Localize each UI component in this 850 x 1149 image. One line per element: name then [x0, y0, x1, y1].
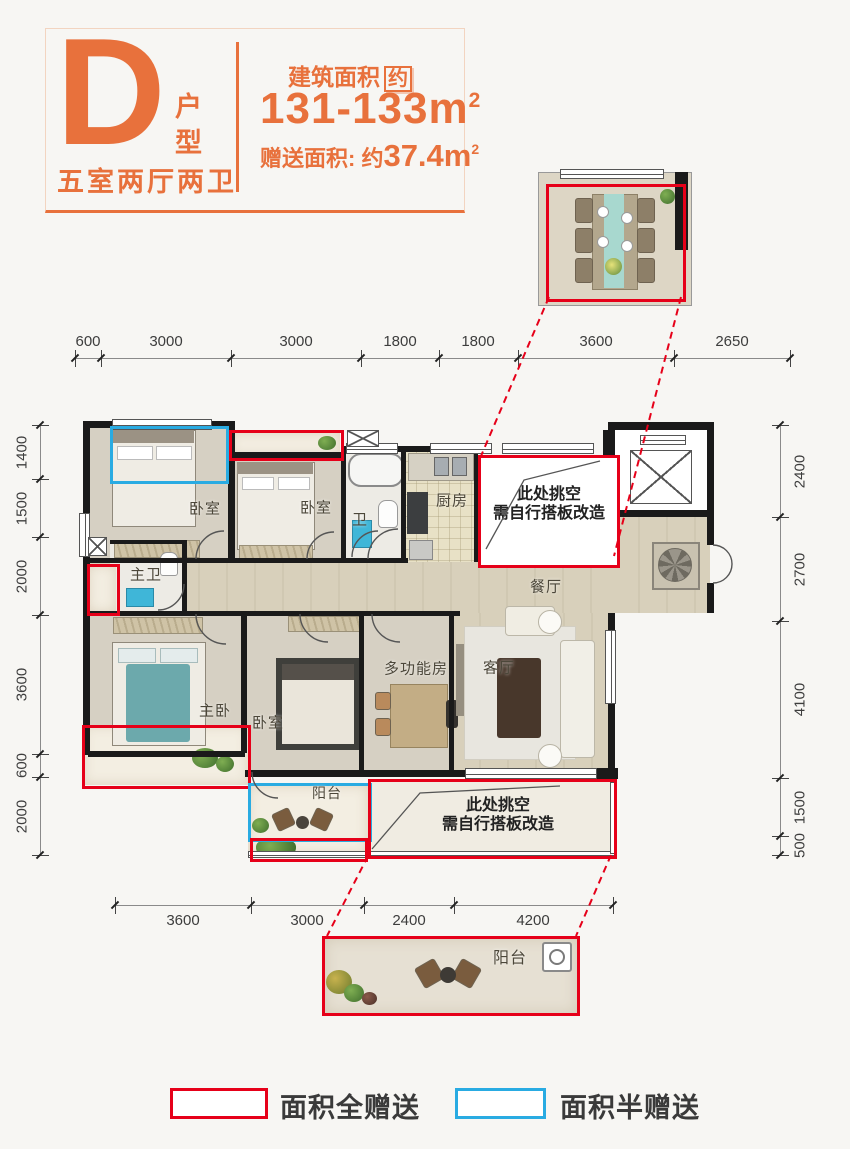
pillow — [118, 648, 156, 663]
plate — [621, 240, 633, 252]
dim-label: 4200 — [501, 912, 565, 929]
dim-label: 1500 — [14, 477, 31, 541]
door-arc — [713, 564, 732, 583]
wardrobe — [288, 616, 360, 632]
wall-segment — [182, 540, 187, 612]
gift-area-row: 赠送面积: 约37.4m2 — [260, 138, 479, 174]
dim-line-left — [40, 425, 41, 855]
bed-headboard — [237, 462, 313, 474]
room-label-kitchen: 厨房 — [436, 490, 468, 511]
medallion-fan — [658, 548, 692, 582]
door-arc — [713, 545, 732, 564]
dim-label: 2400 — [377, 912, 441, 929]
wall-segment — [707, 583, 714, 613]
floorplan-page: D 户型 五室两厅两卫 建筑面积约 131-133m2 赠送面积: 约37.4m… — [0, 0, 850, 1149]
pillow — [160, 648, 198, 663]
bathtub — [348, 453, 404, 487]
room-label-balcony: 阳台 — [312, 783, 342, 803]
dim-label: 3600 — [564, 333, 628, 350]
full-gift-box-side — [87, 564, 120, 616]
plate — [597, 206, 609, 218]
balcony-table — [440, 967, 456, 983]
window — [560, 169, 664, 179]
full-gift-box-bedroom2 — [229, 430, 344, 461]
chair — [375, 692, 391, 710]
legend-label-full-gift: 面积全赠送 — [280, 1086, 420, 1125]
dim-label: 2000 — [14, 785, 31, 849]
gift-value: 37.4m — [383, 138, 471, 173]
pillow — [278, 477, 310, 490]
dim-label: 1400 — [14, 421, 31, 485]
rooms-spec-label: 五室两厅两卫 — [57, 160, 237, 199]
wall-segment — [707, 422, 714, 517]
area-sup: 2 — [469, 89, 482, 112]
stove — [407, 492, 428, 534]
wall-segment — [707, 517, 714, 545]
dim-label: 3000 — [134, 333, 198, 350]
dim-label: 3000 — [264, 333, 328, 350]
area-value: 131-133m — [260, 84, 469, 133]
dim-label: 3000 — [275, 912, 339, 929]
kitchen-sink — [452, 457, 467, 476]
void-note-line2: 需自行搭板改造 — [398, 815, 598, 834]
side-table — [538, 610, 562, 634]
full-gift-box-balcony-strip — [250, 838, 368, 862]
wall-segment — [608, 510, 714, 517]
room-label-master-bedroom: 主卧 — [199, 700, 231, 721]
window — [605, 630, 616, 704]
wall-segment — [245, 770, 457, 777]
legend-swatch-full-gift — [170, 1088, 268, 1119]
room-label-multi-function: 多功能房 — [384, 658, 448, 679]
header-divider — [236, 42, 239, 192]
side-table — [538, 744, 562, 768]
ac-unit — [542, 942, 572, 972]
wall-segment — [359, 613, 364, 770]
chair — [375, 718, 391, 736]
dim-label: 2700 — [792, 538, 809, 602]
window — [430, 443, 492, 454]
half-gift-box-balcony — [248, 783, 372, 842]
void-note-bottom: 此处挑空 需自行搭板改造 — [398, 796, 598, 834]
dim-label: 3600 — [14, 653, 31, 717]
wall-segment — [603, 430, 615, 455]
kitchen-sink — [434, 457, 449, 476]
gift-label: 赠送面积: 约 — [260, 146, 383, 171]
dim-label: 2650 — [700, 333, 764, 350]
unit-type-label: 户型 — [167, 92, 206, 164]
void-note-top: 此处挑空 需自行搭板改造 — [487, 485, 611, 523]
floor-medallion — [652, 542, 700, 590]
dim-label: 4100 — [792, 668, 809, 732]
wall-segment — [88, 611, 460, 616]
pillow — [242, 477, 274, 490]
full-gift-box-lower-left — [82, 725, 251, 789]
room-label-bedroom3: 卧室 — [252, 712, 284, 733]
bed-blanket — [282, 664, 354, 680]
half-gift-box-bedroom1 — [110, 426, 229, 484]
plant — [362, 992, 377, 1005]
wall-segment — [401, 446, 406, 562]
toilet — [160, 552, 178, 576]
tv-cabinet — [456, 644, 464, 716]
wall-segment — [110, 540, 186, 544]
legend-label-half-gift: 面积半赠送 — [560, 1086, 700, 1125]
ac-unit-icon — [347, 430, 379, 447]
sofa — [560, 640, 595, 758]
dining-chair — [637, 258, 655, 283]
window — [465, 768, 597, 779]
dining-chair — [575, 258, 593, 283]
dim-label: 500 — [792, 814, 809, 878]
wall-segment — [83, 421, 90, 519]
room-label-living: 客厅 — [483, 657, 515, 678]
detail-inset-balcony-label: 阳台 — [493, 944, 527, 968]
dim-label: 2000 — [14, 545, 31, 609]
wall-segment — [449, 613, 454, 770]
dim-line-right — [780, 425, 781, 855]
plate — [621, 212, 633, 224]
void-note-line1: 此处挑空 — [487, 485, 611, 504]
ac-fan-icon — [549, 949, 565, 965]
fridge — [409, 540, 433, 560]
dashed-connector — [481, 297, 549, 456]
toilet — [378, 500, 398, 528]
room-label-bedroom2: 卧室 — [300, 497, 332, 518]
area-value-row: 131-133m2 — [260, 84, 481, 134]
dashed-connector — [576, 855, 611, 936]
dim-label: 2400 — [792, 440, 809, 504]
dim-label: 1800 — [368, 333, 432, 350]
window — [502, 443, 594, 454]
wardrobe — [113, 617, 203, 634]
legend-swatch-half-gift — [455, 1088, 546, 1119]
plant — [660, 189, 675, 204]
desk-table — [390, 684, 448, 748]
dim-label: 600 — [56, 333, 120, 350]
wall-segment — [341, 446, 346, 562]
centerpiece-flowers — [605, 258, 622, 275]
gift-sup: 2 — [471, 141, 479, 157]
room-label-bath: 卫 — [352, 509, 368, 530]
wall-segment — [608, 422, 714, 430]
room-label-bedroom1: 卧室 — [189, 498, 221, 519]
plant — [344, 984, 364, 1002]
room-label-master-bath: 主卫 — [130, 564, 162, 585]
dining-chair — [575, 228, 593, 253]
elevator-door — [640, 435, 686, 445]
dim-label: 1800 — [446, 333, 510, 350]
dining-chair — [637, 198, 655, 223]
dim-line-top — [75, 358, 790, 359]
dining-chair — [637, 228, 655, 253]
ac-unit-icon — [88, 537, 107, 556]
unit-letter: D — [56, 16, 166, 168]
elevator-car — [630, 450, 692, 504]
wall-segment — [88, 558, 408, 563]
dim-label: 3600 — [151, 912, 215, 929]
sink-mat — [126, 588, 154, 607]
dining-chair — [575, 198, 593, 223]
void-note-line2: 需自行搭板改造 — [487, 504, 611, 523]
room-label-dining: 餐厅 — [530, 576, 562, 597]
void-note-line1: 此处挑空 — [398, 796, 598, 815]
plate — [597, 236, 609, 248]
